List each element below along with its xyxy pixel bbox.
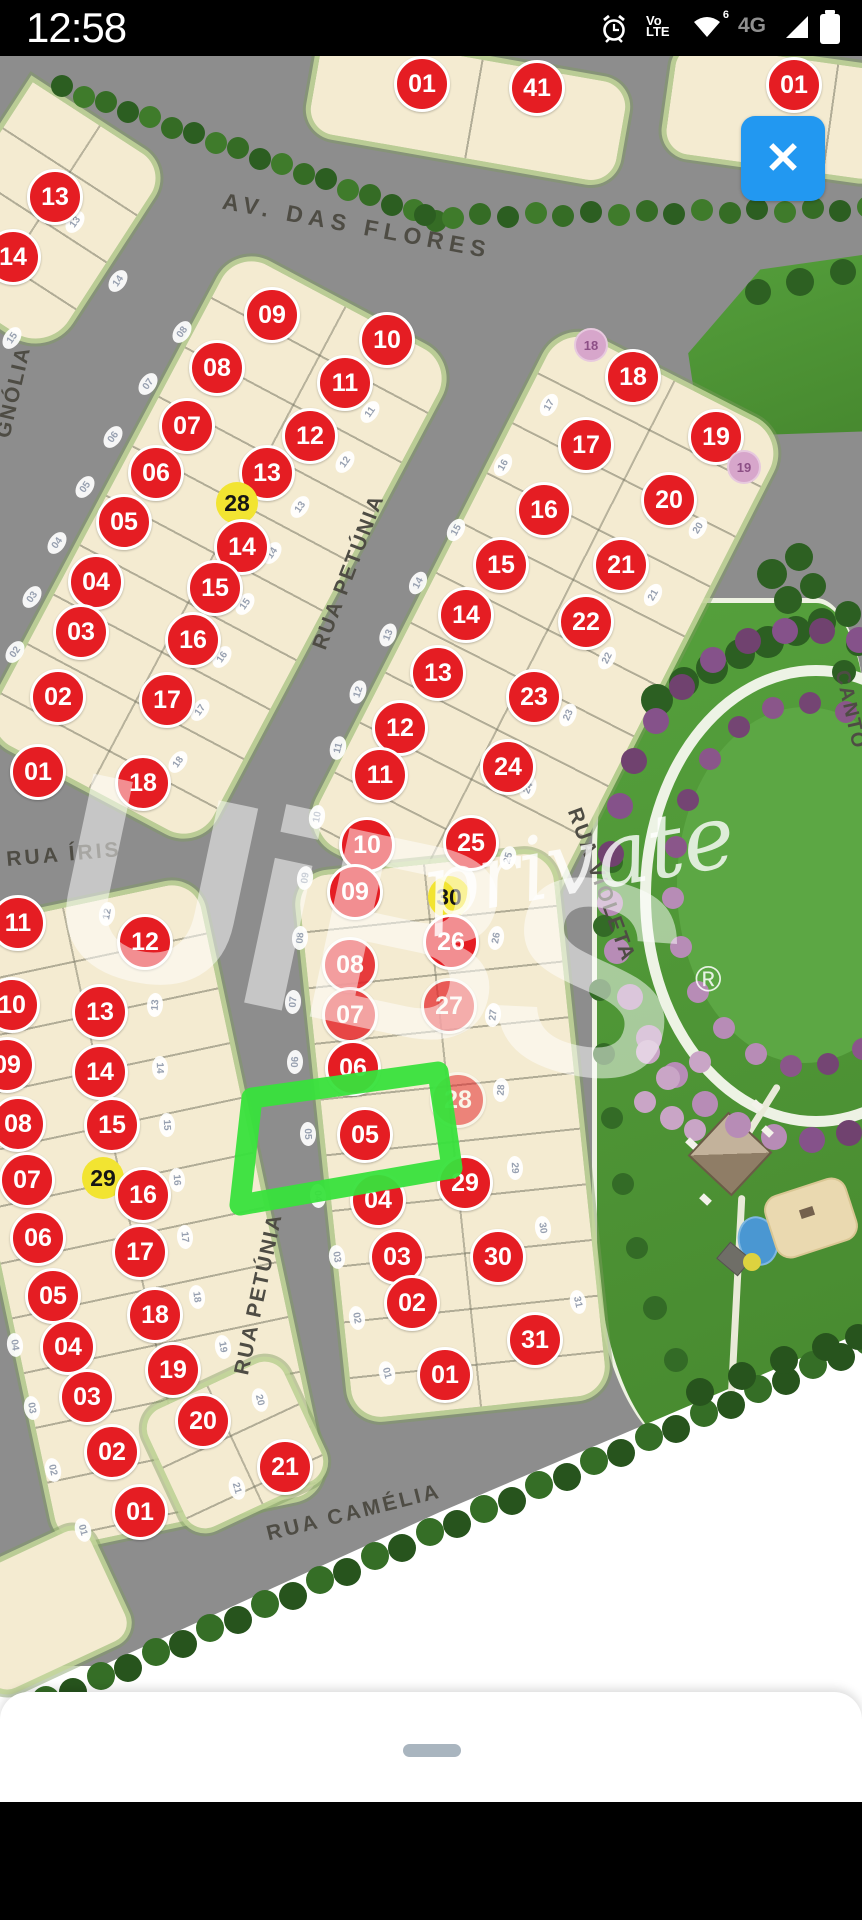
tree-icon: [525, 1471, 553, 1499]
tree-icon: [498, 1487, 526, 1515]
park-tree-icon: [687, 981, 709, 1003]
lot-marker[interactable]: 31: [507, 1312, 563, 1368]
lot-marker[interactable]: 12: [117, 914, 173, 970]
lot-marker[interactable]: 01: [112, 1484, 168, 1540]
corner-marker[interactable]: 18: [574, 328, 608, 362]
lot-marker[interactable]: 04: [350, 1172, 406, 1228]
tree-icon: [169, 1630, 197, 1658]
lot-marker[interactable]: 16: [115, 1167, 171, 1223]
lot-marker[interactable]: 18: [115, 755, 171, 811]
park-tree-icon: [745, 1043, 767, 1065]
block-marker[interactable]: 30: [428, 876, 470, 918]
lot-marker[interactable]: 21: [257, 1439, 313, 1495]
tree-icon: [251, 1590, 279, 1618]
tree-icon: [774, 586, 802, 614]
lot-marker[interactable]: 06: [128, 445, 184, 501]
wifi-icon: 6: [692, 13, 722, 44]
lot-marker[interactable]: 07: [159, 398, 215, 454]
tree-icon: [664, 1348, 688, 1372]
lot-marker[interactable]: 24: [480, 739, 536, 795]
lot-marker[interactable]: 14: [72, 1044, 128, 1100]
park-tree-icon: [617, 984, 643, 1010]
bush-icon: [691, 199, 713, 221]
tree-icon: [662, 1415, 690, 1443]
tree-icon: [635, 1423, 663, 1451]
lot-marker[interactable]: 03: [59, 1369, 115, 1425]
lot-marker[interactable]: 09: [244, 287, 300, 343]
tree-icon: [306, 1566, 334, 1594]
lot-marker[interactable]: 18: [605, 349, 661, 405]
bush-icon: [552, 205, 574, 227]
tree-icon: [812, 1333, 840, 1361]
lot-marker[interactable]: 03: [53, 604, 109, 660]
bush-icon: [608, 204, 630, 226]
lot-marker[interactable]: 17: [112, 1224, 168, 1280]
tree-icon: [443, 1510, 471, 1538]
lot-marker[interactable]: 01: [417, 1347, 473, 1403]
park-tree-icon: [660, 1106, 684, 1130]
park-tree-icon: [669, 674, 695, 700]
tree-icon: [830, 259, 856, 285]
battery-icon: [820, 10, 840, 44]
park-tree-icon: [762, 697, 784, 719]
lot-marker[interactable]: 28: [430, 1072, 486, 1128]
tree-icon: [279, 1582, 307, 1610]
bush-icon: [315, 168, 337, 190]
park-tree-icon: [780, 1055, 802, 1077]
lot-marker[interactable]: 26: [423, 914, 479, 970]
lot-marker[interactable]: 17: [558, 417, 614, 473]
lot-marker[interactable]: 25: [443, 815, 499, 871]
bush-icon: [293, 163, 315, 185]
park-tree-icon: [665, 836, 687, 858]
tree-icon: [224, 1606, 252, 1634]
park-tree-icon: [728, 716, 750, 738]
lot-marker[interactable]: 01: [10, 744, 66, 800]
lot-marker[interactable]: 15: [187, 560, 243, 616]
bush-icon: [359, 184, 381, 206]
park-tree-icon: [713, 1017, 735, 1039]
park-tree-icon: [836, 1120, 862, 1146]
bush-icon: [469, 203, 491, 225]
lot-marker[interactable]: 16: [165, 612, 221, 668]
park-tree-icon: [799, 1127, 825, 1153]
bush-icon: [525, 202, 547, 224]
lot-marker[interactable]: 05: [96, 494, 152, 550]
bush-icon: [337, 179, 359, 201]
bottom-sheet[interactable]: [0, 1692, 862, 1804]
park-tree-icon: [636, 1040, 660, 1064]
lot-marker[interactable]: 13: [27, 169, 83, 225]
block-marker[interactable]: 28: [216, 482, 258, 524]
tree-icon: [835, 601, 861, 627]
lot-marker[interactable]: 05: [25, 1268, 81, 1324]
park-tree-icon: [735, 628, 761, 654]
tree-icon: [626, 1237, 648, 1259]
tree-icon: [800, 573, 826, 599]
tree-icon: [643, 1296, 667, 1320]
play-equipment-icon: [743, 1253, 761, 1271]
bush-icon: [139, 106, 161, 128]
park-tree-icon: [677, 789, 699, 811]
tree-icon: [757, 559, 787, 589]
lot-map[interactable]: UiBS private ® ✕ AV. DAS FLORESGNÓLIARUA…: [0, 0, 862, 1920]
bush-icon: [161, 117, 183, 139]
bush-icon: [183, 122, 205, 144]
park-tree-icon: [817, 1053, 839, 1075]
tree-icon: [580, 1447, 608, 1475]
lot-marker[interactable]: 27: [421, 978, 477, 1034]
park-tree-icon: [799, 692, 821, 714]
lot-marker[interactable]: 09: [327, 864, 383, 920]
bush-icon: [746, 198, 768, 220]
tree-icon: [745, 279, 771, 305]
lot-marker[interactable]: 30: [470, 1229, 526, 1285]
bush-icon: [580, 201, 602, 223]
lot-marker[interactable]: 10: [359, 312, 415, 368]
bush-icon: [249, 148, 271, 170]
tree-icon: [142, 1638, 170, 1666]
lot-marker[interactable]: 29: [437, 1155, 493, 1211]
close-icon: ✕: [765, 133, 802, 184]
park-tree-icon: [643, 708, 669, 734]
lot-marker[interactable]: 20: [641, 472, 697, 528]
tree-icon: [728, 1362, 756, 1390]
network-type: 4G: [738, 14, 766, 38]
lot-marker[interactable]: 02: [84, 1424, 140, 1480]
tree-icon: [87, 1662, 115, 1690]
bush-icon: [73, 86, 95, 108]
lot-marker[interactable]: 13: [410, 645, 466, 701]
tree-icon: [416, 1518, 444, 1546]
lot-marker[interactable]: 23: [506, 669, 562, 725]
lot-marker[interactable]: 02: [384, 1275, 440, 1331]
tree-icon: [607, 1439, 635, 1467]
park-tree-icon: [621, 748, 647, 774]
lot-marker[interactable]: 15: [473, 537, 529, 593]
park-tree-icon: [772, 618, 798, 644]
park-tree-icon: [656, 1066, 680, 1090]
lot-marker[interactable]: 12: [282, 408, 338, 464]
lot-marker[interactable]: 15: [84, 1097, 140, 1153]
tree-icon: [470, 1495, 498, 1523]
lot-marker[interactable]: 06: [10, 1210, 66, 1266]
status-bar: 12:58 VoLTE 6 4G: [0, 0, 862, 56]
park-tree-icon: [692, 1091, 718, 1117]
bush-icon: [442, 207, 464, 229]
tree-icon: [612, 1173, 634, 1195]
park-tree-icon: [684, 1119, 706, 1141]
bush-icon: [95, 91, 117, 113]
park-tree-icon: [699, 748, 721, 770]
park-tree-icon: [662, 887, 684, 909]
park-tree-icon: [725, 1112, 751, 1138]
bush-icon: [829, 200, 851, 222]
bush-icon: [497, 206, 519, 228]
tree-icon: [785, 543, 813, 571]
park-tree-icon: [689, 1051, 711, 1073]
lot-marker[interactable]: 13: [72, 984, 128, 1040]
bush-icon: [227, 137, 249, 159]
lot-marker[interactable]: 01: [394, 56, 450, 112]
lot-marker[interactable]: 14: [438, 587, 494, 643]
tree-icon: [333, 1558, 361, 1586]
tree-icon: [388, 1534, 416, 1562]
bush-icon: [271, 153, 293, 175]
lot-marker[interactable]: 04: [40, 1319, 96, 1375]
tree-icon: [361, 1542, 389, 1570]
android-nav-bar: [0, 1802, 862, 1920]
lot-marker[interactable]: 02: [30, 669, 86, 725]
lot-marker[interactable]: 11: [317, 355, 373, 411]
corner-marker[interactable]: 19: [727, 450, 761, 484]
tree-icon: [770, 1346, 798, 1374]
tree-icon: [553, 1463, 581, 1491]
tree-icon: [786, 268, 814, 296]
lot-marker[interactable]: 41: [509, 60, 565, 116]
bush-icon: [663, 203, 685, 225]
bush-icon: [381, 194, 403, 216]
lot-marker[interactable]: 08: [322, 937, 378, 993]
tree-icon: [601, 1107, 623, 1129]
tree-icon: [114, 1654, 142, 1682]
bush-icon: [774, 201, 796, 223]
phone-screen: UiBS private ® ✕ AV. DAS FLORESGNÓLIARUA…: [0, 0, 862, 1920]
bush-icon: [117, 101, 139, 123]
tree-icon: [593, 1043, 615, 1065]
lot-marker[interactable]: 01: [766, 57, 822, 113]
alarm-icon: [600, 12, 628, 49]
lot-marker[interactable]: 21: [593, 537, 649, 593]
park-tree-icon: [809, 618, 835, 644]
lot-marker[interactable]: 07: [0, 1152, 55, 1208]
lot-marker[interactable]: 22: [558, 594, 614, 650]
park-tree-icon: [700, 647, 726, 673]
lot-marker[interactable]: 06: [325, 1040, 381, 1096]
lot-marker[interactable]: 05: [337, 1107, 393, 1163]
park-tree-icon: [607, 793, 633, 819]
clock-text: 12:58: [26, 4, 126, 52]
wifi-6-badge: 6: [723, 9, 729, 21]
lot-marker[interactable]: 18: [127, 1287, 183, 1343]
lot-marker[interactable]: 20: [175, 1393, 231, 1449]
lot-marker[interactable]: 17: [139, 672, 195, 728]
volte-indicator: VoLTE: [646, 15, 670, 37]
bush-icon: [51, 75, 73, 97]
lot-marker[interactable]: 16: [516, 482, 572, 538]
lot-marker[interactable]: 04: [68, 554, 124, 610]
bush-icon: [205, 132, 227, 154]
bush-icon: [636, 200, 658, 222]
drag-handle[interactable]: [403, 1744, 461, 1757]
lot-marker[interactable]: 19: [145, 1342, 201, 1398]
tree-icon: [196, 1614, 224, 1642]
lot-marker[interactable]: 07: [322, 987, 378, 1043]
lot-marker[interactable]: 08: [189, 340, 245, 396]
park-tree-icon: [670, 936, 692, 958]
bush-icon: [719, 202, 741, 224]
tree-icon: [717, 1391, 745, 1419]
tree-icon: [686, 1378, 714, 1406]
signal-icon: [784, 14, 810, 45]
tree-icon: [589, 979, 611, 1001]
close-button[interactable]: ✕: [741, 116, 825, 201]
park-tree-icon: [634, 1091, 656, 1113]
lot-marker[interactable]: 11: [352, 747, 408, 803]
